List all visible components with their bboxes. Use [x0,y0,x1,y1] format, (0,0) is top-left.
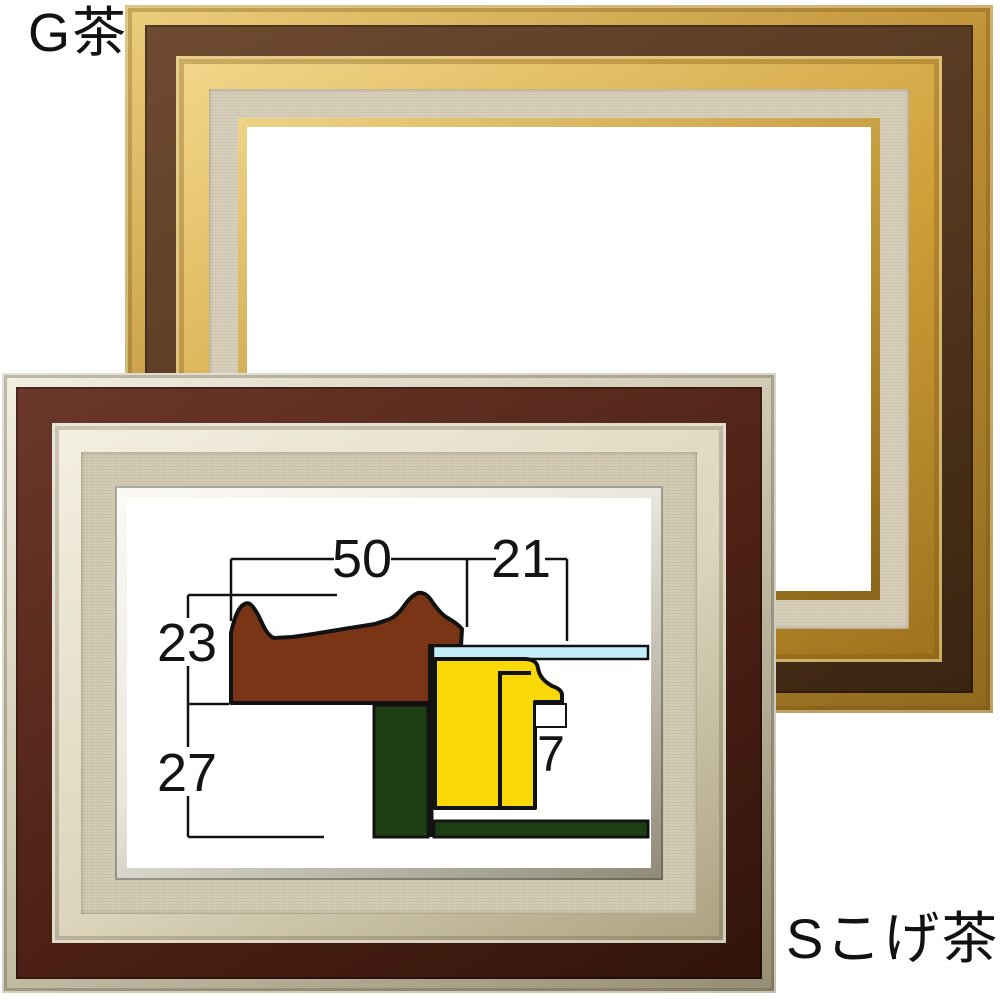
bottom-rail [434,821,648,837]
dim-label-27: 27 [157,743,217,803]
molding-profile-shape [231,593,462,703]
silver-frame-silver-band: 50 21 23 27 7 [52,423,726,943]
silver-frame-brown-band: 50 21 23 27 7 [16,387,762,979]
silver-frame-linen-liner: 50 21 23 27 7 [81,452,697,914]
dim-label-7: 7 [537,726,565,782]
product-photo: 50 21 23 27 7 G茶 Sこげ茶 [0,0,1000,1000]
cross-section-diagram: 50 21 23 27 7 [127,498,651,868]
silver-frame: 50 21 23 27 7 [2,373,776,993]
silver-frame-inner-lip: 50 21 23 27 7 [115,486,663,880]
dim-label-23: 23 [157,613,217,673]
lip-depth-box [535,704,566,727]
silver-frame-outer-band: 50 21 23 27 7 [2,373,776,993]
dim-label-21: 21 [491,529,551,589]
silver-frame-name-label: Sこげ茶 [786,908,999,970]
silver-frame-opening: 50 21 23 27 7 [127,498,651,868]
dim-label-50: 50 [332,529,392,589]
gold-frame-name-label: G茶 [28,4,128,63]
liner-block [374,705,428,837]
